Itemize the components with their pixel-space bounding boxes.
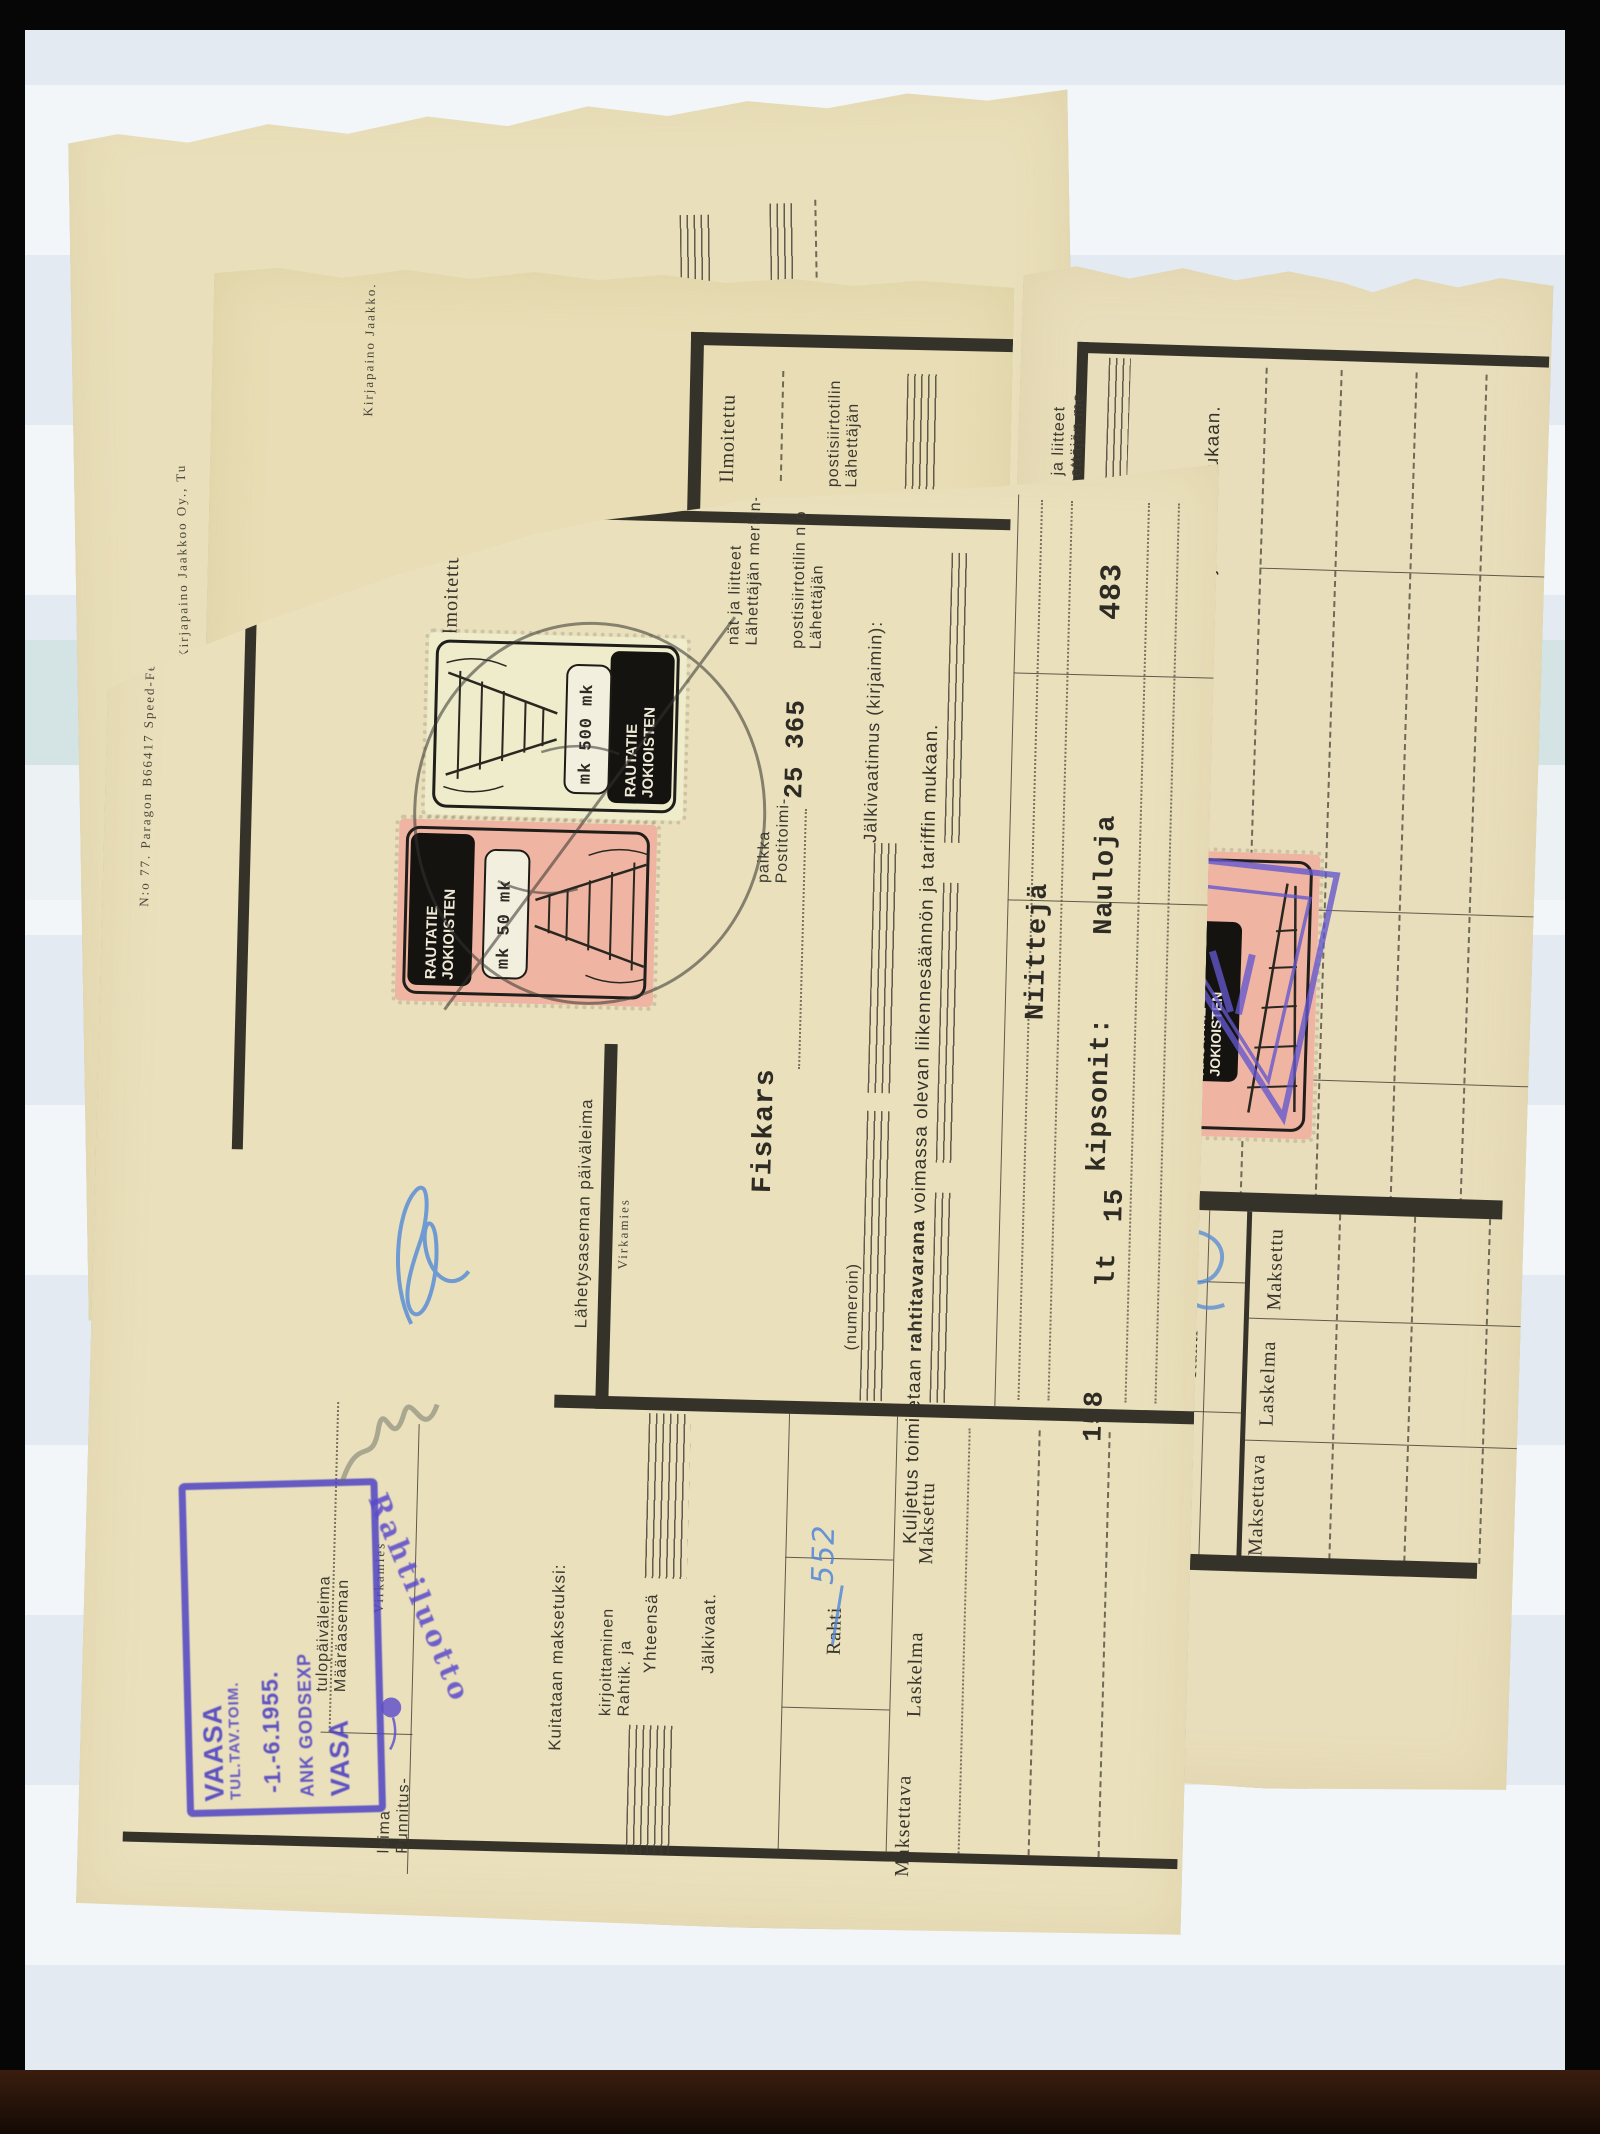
dotted-leader <box>1124 503 1150 1403</box>
section-divider-bar <box>595 1044 618 1409</box>
rahtikirja-label: Rahtik. jakirjoittaminen <box>597 1576 637 1717</box>
table-rule <box>778 1414 791 1854</box>
column-rule <box>1478 1219 1491 1564</box>
row-line <box>1242 1439 1517 1449</box>
printer-imprint: Kirjapaino Jaakkoo Oy., Tu <box>171 319 192 659</box>
sender-postal-label: Lähettäjänpostisiirtotilin n:o <box>789 504 830 650</box>
waybill-doc-front: N:o 77. Paragon B66417 Speed-Feed Ilmoit… <box>76 431 1219 1939</box>
weight-typed: 158 <box>1079 1336 1113 1442</box>
arrival-stamp-exp: ANK GODSEXP <box>290 1507 318 1797</box>
quantity-typed: 15 <box>1100 1152 1133 1223</box>
blue-ink-signature <box>381 1173 480 1335</box>
photographed-album-page: Kirjapaino Jaakkoo Oy., Tu ilmoitettu (m… <box>0 0 1600 2134</box>
writing-rules <box>936 883 963 1163</box>
pencil-scribble <box>327 1372 450 1505</box>
col-maksettava: Maksettava <box>891 1777 917 1878</box>
blue-amount-handwriting: 552 <box>807 1434 845 1585</box>
printer-imprint: Kirjapaino Jaakko. <box>361 311 378 416</box>
column-rule <box>1460 375 1488 1205</box>
row-line <box>1246 1318 1521 1328</box>
ilmoitettu-label: Ilmoitettu <box>716 362 742 482</box>
writing-rules <box>867 843 900 1094</box>
col-maksettava: Maksettava <box>1244 1456 1270 1557</box>
unit-typed: lt <box>1092 1237 1124 1288</box>
postal-account-number: 25 365 <box>780 678 813 799</box>
jalkivaatimus-label: Jälkivaatimus (kirjaimin): <box>860 508 889 843</box>
writing-rules <box>905 374 938 490</box>
col-laskelma: Laskelma <box>903 1627 928 1718</box>
form-frame-bar <box>691 332 1013 352</box>
col-laskelma: Laskelma <box>1255 1336 1281 1427</box>
writing-rules <box>944 553 972 843</box>
arrival-stamp-city-sv: VASA <box>321 1606 357 1797</box>
sender-postal-label: Lähettäjänpostisiirtotilin <box>825 382 864 488</box>
col-maksettu: Maksettu <box>1263 1220 1289 1311</box>
table-top-bar <box>1154 1190 1502 1220</box>
form-frame-bar <box>1079 342 1549 368</box>
writing-rules <box>859 1111 893 1402</box>
goods-typed-1: Nauloja <box>1090 775 1125 936</box>
writing-rules <box>929 1193 954 1403</box>
field-line <box>1014 672 1214 678</box>
goods-typed-2: kipsonit: <box>1084 961 1121 1172</box>
dotted-leader <box>958 1428 971 1853</box>
virkamies-label: Virkamies <box>616 1179 633 1269</box>
arrival-stamp-date: -1.-6.1955. <box>252 1513 286 1794</box>
writing-rules <box>645 1413 691 1579</box>
column-rule <box>1098 1432 1111 1857</box>
column-line <box>994 494 1019 1406</box>
jalkivaat-label: Jälkivaat. <box>698 1584 720 1674</box>
column-rule <box>780 371 784 481</box>
column-rule <box>1403 1217 1416 1562</box>
desk-edge <box>0 2070 1600 2134</box>
waybill-number: 483 <box>1095 495 1133 621</box>
vaasa-arrival-stamp: VAASA TUL.TAV.TOIM. -1.-6.1955. ANK GODS… <box>178 1478 386 1817</box>
dispatch-station-label: Lähetysaseman päiväleima <box>571 1083 597 1328</box>
sender-notes-label: Lähettäjän merkin-nät ja liitteet <box>725 505 765 646</box>
goods-typed-3: Niittejä <box>1021 805 1058 1021</box>
postmark-cancel <box>374 578 816 1049</box>
column-rule <box>1390 372 1418 1202</box>
yhteensa-label: Yhteensä <box>640 1583 662 1673</box>
writing-rules <box>625 1725 676 1856</box>
printer-imprint: N:o 77. Paragon B66417 Speed-Feed <box>137 732 157 907</box>
post-office-label: Postitoimi-paikka <box>755 783 794 884</box>
post-office-value: Fiskars <box>748 1073 783 1194</box>
kuitataan-label: Kuitataan maksetuksi: <box>545 1541 570 1751</box>
ink-blob <box>372 1693 414 1754</box>
row-line <box>1259 568 1544 578</box>
column-rule <box>1028 1430 1041 1855</box>
row-line <box>781 1707 889 1711</box>
col-maksettu: Maksettu <box>915 1474 940 1565</box>
column-rule <box>1328 1214 1341 1559</box>
dotted-leader <box>1154 504 1180 1404</box>
